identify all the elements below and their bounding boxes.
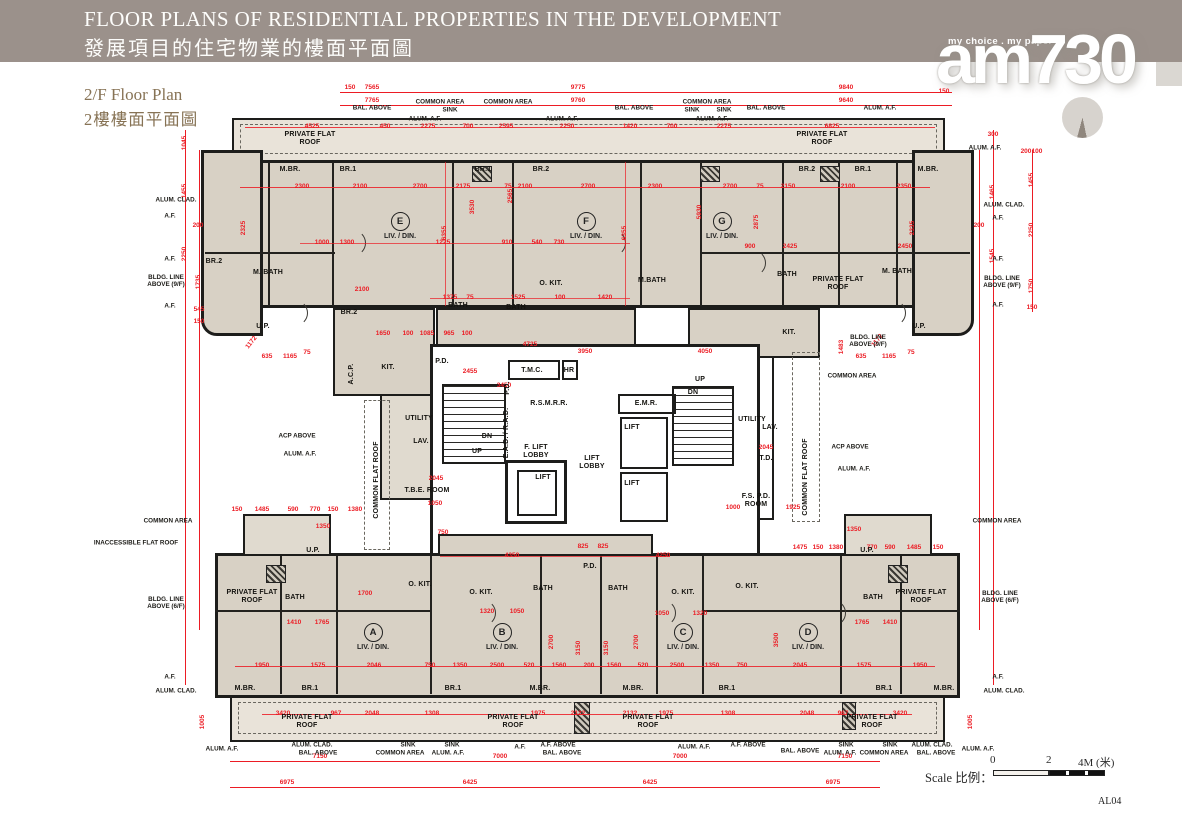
dim-label: 1700: [358, 591, 372, 598]
wall-partition: [600, 556, 602, 694]
callout-label: A.F. ABOVE: [730, 741, 765, 748]
callout-label: COMMON AREA: [860, 749, 909, 756]
room-label: PRIVATE FLAT ROOF: [812, 276, 863, 292]
dim-label: 1300: [340, 240, 354, 247]
dim-label: 7000: [493, 754, 507, 761]
dim-label: 1050: [510, 609, 524, 616]
room-label: M.BR.: [623, 685, 644, 693]
callout-label: BLDG. LINE ABOVE (9/F): [849, 334, 886, 348]
dim-label: 6825: [825, 124, 839, 131]
dim-label: 6425: [643, 780, 657, 787]
unit-b-marker: BLIV. / DIN.: [486, 623, 518, 651]
dim-label: 2350: [897, 184, 911, 191]
dim-label: 1925: [786, 505, 800, 512]
dim-label: 7000: [673, 754, 687, 761]
dim-label: 2455: [463, 369, 477, 376]
dim-label: 2300: [648, 184, 662, 191]
dim-label: 150: [933, 545, 944, 552]
dim-label: 1455: [1029, 173, 1036, 187]
callout-label: INACCESSIBLE FLAT ROOF: [94, 539, 178, 546]
callout-label: SINK: [400, 741, 415, 748]
dim-label: 2175: [456, 184, 470, 191]
dim-label: 1485: [255, 507, 269, 514]
callout-label: ALUM. CLAD.: [984, 201, 1025, 208]
dim-label: 1005: [200, 715, 207, 729]
callout-label: COMMON AREA: [683, 98, 732, 105]
callout-label: A.F. ABOVE: [540, 741, 575, 748]
dim-label: 2250: [182, 247, 189, 261]
unit-e-marker: ELIV. / DIN.: [384, 212, 416, 240]
liv-din-label: LIV. / DIN.: [570, 233, 602, 240]
dim-label: 750: [425, 663, 436, 670]
dim-label: 150: [232, 507, 243, 514]
dim-label: 150: [194, 319, 205, 326]
dim-label: 2122: [571, 711, 585, 718]
room-label: BR.1: [475, 166, 492, 174]
room-label: BATH: [285, 594, 305, 602]
dim-label: 1410: [883, 620, 897, 627]
callout-label: A.F.: [164, 302, 175, 309]
room-label: PRIVATE FLAT ROOF: [487, 714, 538, 730]
room-label: PRIVATE FLAT ROOF: [281, 714, 332, 730]
door-arc: [740, 250, 766, 276]
room-label: O. KIT.: [539, 280, 562, 288]
dim-label: 150: [345, 85, 356, 92]
dim-label: 2595: [499, 124, 513, 131]
room-label: PRIVATE FLAT ROOF: [846, 714, 897, 730]
room-label: COMMON FLAT ROOF: [802, 438, 810, 515]
dim-label: 2045: [793, 663, 807, 670]
unit-circle: A: [364, 623, 383, 642]
dim-label: 1225: [436, 240, 450, 247]
floor-plan-drawing: 1507565977598401507765976096404525450227…: [0, 0, 1182, 828]
dim-line: [230, 787, 880, 788]
dim-label: 1350: [453, 663, 467, 670]
callout-label: ALUM. A.F.: [678, 743, 711, 750]
dim-label: 1560: [552, 663, 566, 670]
dim-label: 1350: [847, 527, 861, 534]
callout-label: ACP ABOVE: [278, 432, 315, 439]
dim-label: 450: [380, 124, 391, 131]
dim-label: 1650: [376, 331, 390, 338]
callout-label: BAL. ABOVE: [747, 104, 786, 111]
dim-label: 2700: [549, 635, 556, 649]
dim-label: 1320: [480, 609, 494, 616]
dim-label: 9760: [571, 98, 585, 105]
sheet-code: AL04: [1098, 796, 1121, 807]
wall-partition: [700, 252, 970, 254]
callout-label: ALUM. A.F.: [864, 104, 897, 111]
callout-label: ALUM. CLAD.: [156, 196, 197, 203]
dim-label: 1350: [316, 524, 330, 531]
room-label: LIFT: [535, 474, 551, 482]
dim-label: 9640: [839, 98, 853, 105]
dim-label: 100: [555, 295, 566, 302]
dim-label: 6975: [280, 780, 294, 787]
dim-label: 2275: [421, 124, 435, 131]
wall-partition: [700, 162, 702, 306]
room-label: F.S. P.D. ROOM: [742, 493, 771, 509]
dim-label: 1172: [245, 335, 259, 350]
dim-label: 75: [303, 350, 310, 357]
scale-bar-right: [1049, 770, 1105, 776]
callout-label: A.F.: [992, 673, 1003, 680]
dim-label: 9840: [839, 85, 853, 92]
room-label: BR.1: [340, 166, 357, 174]
room-label: O. KIT.: [408, 581, 431, 589]
dim-label: 520: [524, 663, 535, 670]
room-label: BR.2: [341, 309, 358, 317]
wall-partition: [205, 252, 335, 254]
callout-label: BAL. ABOVE: [299, 749, 338, 756]
room-label: HR: [564, 367, 575, 375]
dim-label: 1750: [1029, 279, 1036, 293]
wall-partition: [268, 162, 270, 306]
hatch-box: [574, 702, 590, 734]
wall-right-tower: [912, 150, 974, 336]
dim-label: 7765: [365, 98, 379, 105]
door-arc: [282, 300, 308, 326]
dim-label: 6975: [826, 780, 840, 787]
callout-label: BAL. ABOVE: [543, 749, 582, 756]
dim-line: [230, 761, 880, 762]
dim-label: 2565: [508, 189, 515, 203]
room-label: M. BATH: [253, 269, 283, 277]
dim-label: 4725: [523, 342, 537, 349]
dim-line: [440, 556, 670, 557]
room-label: M.BATH: [638, 277, 666, 285]
room-label: P.D.: [435, 358, 449, 366]
callout-label: ALUM. A.F.: [409, 115, 442, 122]
dim-label: 1575: [857, 663, 871, 670]
dim-label: 635: [262, 354, 273, 361]
room-label: R.S.M.R.R.: [530, 400, 567, 408]
dim-label: 590: [288, 507, 299, 514]
liv-din-label: LIV. / DIN.: [486, 644, 518, 651]
room-label: UTILITY: [405, 415, 433, 423]
callout-label: A.F.: [164, 255, 175, 262]
callout-label: BLDG. LINE ABOVE (9/F): [147, 274, 184, 288]
wall-partition: [452, 162, 454, 306]
room-label: M.BR.: [918, 166, 939, 174]
dim-label: 1950: [913, 663, 927, 670]
dim-label: 200: [974, 223, 985, 230]
dim-label: 2275: [717, 124, 731, 131]
wall-partition: [215, 610, 430, 612]
dim-label: 75: [756, 184, 763, 191]
callout-label: COMMON AREA: [376, 749, 425, 756]
hatch-box: [888, 565, 908, 583]
hatch-box: [700, 166, 720, 182]
room-label: COMMON FLAT ROOF: [373, 441, 381, 518]
callout-label: ALUM. CLAD.: [156, 687, 197, 694]
callout-label: ALUM. A.F.: [824, 749, 857, 756]
callout-label: ALUM. CLAD.: [292, 741, 333, 748]
callout-label: ALUM. A.F.: [838, 465, 871, 472]
scale-tick-4: 4M (米): [1078, 754, 1114, 770]
room-label: M.BR.: [280, 166, 301, 174]
dim-label: 1380: [829, 545, 843, 552]
dim-label: 1320: [693, 611, 707, 618]
unit-circle: G: [713, 212, 732, 231]
callout-label: BLDG. LINE ABOVE (9/F): [983, 275, 1020, 289]
hatch-box: [266, 565, 286, 583]
dim-label: 6355: [622, 226, 629, 240]
callout-label: BLDG. LINE ABOVE (6/F): [981, 590, 1018, 604]
dim-label: 1465: [990, 185, 997, 199]
room-label: T.D.: [759, 455, 772, 463]
callout-label: SINK: [716, 106, 731, 113]
dim-label: 2700: [413, 184, 427, 191]
room-label: BR.1: [445, 685, 462, 693]
dim-label: 1000: [726, 505, 740, 512]
wall-partition: [336, 556, 338, 694]
room-label: PRIVATE FLAT ROOF: [226, 589, 277, 605]
room-label: U.P.: [912, 323, 926, 331]
dim-label: 200: [584, 663, 595, 670]
callout-label: SINK: [444, 741, 459, 748]
dim-label: 75: [907, 350, 914, 357]
dim-label: 2045: [429, 476, 443, 483]
room-label: BR.2: [533, 166, 550, 174]
room-label: BATH: [506, 304, 526, 312]
dim-label: 750: [737, 663, 748, 670]
dim-label: 2100: [355, 287, 369, 294]
dim-label: 2100: [841, 184, 855, 191]
callout-label: SINK: [442, 106, 457, 113]
room-label: BATH: [448, 302, 468, 310]
dim-label: 700: [667, 124, 678, 131]
dim-label: 100: [1032, 149, 1043, 156]
dim-label: 4050: [698, 349, 712, 356]
room-label: LAV.: [413, 438, 429, 446]
room-label: BR.1: [876, 685, 893, 693]
stair-right: [672, 386, 734, 466]
dim-label: 1483: [839, 340, 846, 354]
room-label: BATH: [777, 271, 797, 279]
room-label: LIFT LOBBY: [579, 455, 605, 471]
dim-label: 2048: [365, 711, 379, 718]
dim-label: 1575: [311, 663, 325, 670]
liv-din-label: LIV. / DIN.: [706, 233, 738, 240]
dim-label: 1165: [283, 354, 297, 361]
dim-label: 1485: [907, 545, 921, 552]
dim-label: 75: [466, 295, 473, 302]
dim-label: 3150: [604, 641, 611, 655]
callout-label: A.F.: [992, 214, 1003, 221]
room-label: U.P.: [306, 547, 320, 555]
liv-din-label: LIV. / DIN.: [792, 644, 824, 651]
room-label: UP: [472, 448, 482, 456]
dim-label: 2425: [783, 244, 797, 251]
callout-label: ALUM. A.F.: [206, 745, 239, 752]
dim-label: 1050: [428, 501, 442, 508]
room-label: M. BATH: [882, 268, 912, 276]
unit-c-marker: CLIV. / DIN.: [667, 623, 699, 651]
dim-label: 1045: [182, 136, 189, 150]
dim-label: 770: [310, 507, 321, 514]
callout-label: COMMON AREA: [484, 98, 533, 105]
liv-din-label: LIV. / DIN.: [384, 233, 416, 240]
room-label: O. KIT.: [469, 589, 492, 597]
dim-label: 3150: [576, 641, 583, 655]
room-label: PRIVATE FLAT ROOF: [895, 589, 946, 605]
room-label: BR.1: [302, 685, 319, 693]
room-label: O. KIT.: [671, 589, 694, 597]
room-label: LIFT: [624, 480, 640, 488]
room-label: UP: [695, 376, 705, 384]
callout-label: ALUM. CLAD.: [912, 741, 953, 748]
room-label: DN: [688, 389, 699, 397]
dim-label: 2700: [634, 635, 641, 649]
dim-label: 4525: [305, 124, 319, 131]
dim-label: 100: [462, 331, 473, 338]
wall-partition: [512, 162, 514, 306]
callout-label: BAL. ABOVE: [917, 749, 956, 756]
scale-label: Scale 比例：: [925, 767, 993, 786]
dim-label: 2250: [560, 124, 574, 131]
callout-label: A.F.: [164, 212, 175, 219]
callout-label: A.F.: [992, 255, 1003, 262]
dim-label: 150: [328, 507, 339, 514]
dim-label: 540: [532, 240, 543, 247]
dim-label: 200: [1021, 149, 1032, 156]
room-label: P.D.: [504, 381, 512, 395]
dim-label: 1050: [655, 611, 669, 618]
room-label: BATH: [533, 585, 553, 593]
hatch-box: [820, 166, 840, 182]
dim-label: 150: [939, 89, 950, 96]
callout-label: COMMON AREA: [828, 372, 877, 379]
unit-a-marker: ALIV. / DIN.: [357, 623, 389, 651]
dim-label: 1350: [705, 663, 719, 670]
unit-g-marker: GLIV. / DIN.: [706, 212, 738, 240]
dim-label: 910: [502, 240, 513, 247]
dim-label: 965: [444, 331, 455, 338]
dim-label: 2335: [910, 221, 917, 235]
dim-label: 1380: [348, 507, 362, 514]
dim-label: 730: [554, 240, 565, 247]
room-label: PRIVATE FLAT ROOF: [796, 131, 847, 147]
dim-label: 7565: [365, 85, 379, 92]
dim-line: [185, 130, 186, 685]
dim-label: 1410: [287, 620, 301, 627]
scale-tick-0: 0: [990, 754, 996, 766]
dim-label: 2500: [670, 663, 684, 670]
room-label: F. LIFT LOBBY: [523, 444, 549, 460]
dim-label: 1765: [315, 620, 329, 627]
callout-label: COMMON AREA: [144, 517, 193, 524]
room-label: KIT.: [782, 329, 795, 337]
callout-label: ALUM. CLAD.: [984, 687, 1025, 694]
callout-label: ALUM. A.F.: [284, 450, 317, 457]
unit-circle: F: [577, 212, 596, 231]
room-label: P.D.: [583, 563, 597, 571]
room-label: LAV.: [762, 424, 778, 432]
dim-label: 545: [194, 307, 205, 314]
unit-circle: E: [391, 212, 410, 231]
dim-label: 3530: [470, 200, 477, 214]
callout-label: ALUM. A.F.: [962, 745, 995, 752]
liv-din-label: LIV. / DIN.: [667, 644, 699, 651]
dim-line: [340, 92, 952, 93]
dim-label: 900: [745, 244, 756, 251]
callout-label: A.F.: [514, 743, 525, 750]
room-label: BATH: [863, 594, 883, 602]
dim-label: 3950: [578, 349, 592, 356]
dim-label: 2325: [241, 221, 248, 235]
dim-label: 9775: [571, 85, 585, 92]
callout-label: SINK: [684, 106, 699, 113]
dim-label: 2700: [723, 184, 737, 191]
dim-label: 1735: [196, 275, 203, 289]
dim-label: 300: [988, 132, 999, 139]
callout-label: ALUM. A.F.: [432, 749, 465, 756]
room-label: DN: [482, 433, 493, 441]
room-label: E.A.D. / R.A.D.: [503, 408, 511, 458]
dim-line: [262, 714, 912, 715]
dim-label: 100: [403, 331, 414, 338]
wall-bottom-center-up: [438, 534, 653, 556]
dim-label: 1000: [315, 240, 329, 247]
room-label: U.P.: [256, 323, 270, 331]
dim-label: 2875: [754, 215, 761, 229]
room-label: T.B.E. ROOM: [405, 487, 450, 495]
dim-label: 150: [1027, 305, 1038, 312]
dim-label: 1375: [443, 295, 457, 302]
callout-label: SINK: [882, 741, 897, 748]
callout-label: A.F.: [164, 673, 175, 680]
dim-label: 750: [438, 530, 449, 537]
wall-partition: [332, 162, 334, 306]
dim-label: 2300: [295, 184, 309, 191]
dim-label: 4350: [505, 553, 519, 560]
dim-label: 825: [598, 544, 609, 551]
door-arc: [880, 300, 906, 326]
dim-label: 1420: [598, 295, 612, 302]
dim-label: 2046: [367, 663, 381, 670]
dim-label: 635: [856, 354, 867, 361]
wall-partition: [702, 556, 704, 694]
dim-label: 520: [638, 663, 649, 670]
callout-label: SINK: [838, 741, 853, 748]
dim-label: 590: [885, 545, 896, 552]
room-label: U.P.: [860, 547, 874, 555]
room-label: E.M.R.: [635, 400, 658, 408]
dim-label: 1525: [511, 295, 525, 302]
dim-label: 1308: [425, 711, 439, 718]
liv-din-label: LIV. / DIN.: [357, 644, 389, 651]
callout-label: BAL. ABOVE: [353, 104, 392, 111]
room-label: LIFT: [624, 424, 640, 432]
unit-f-marker: FLIV. / DIN.: [570, 212, 602, 240]
room-label: M.BR.: [934, 685, 955, 693]
dim-label: 1165: [882, 354, 896, 361]
callout-label: BAL. ABOVE: [781, 747, 820, 754]
room-label: M.BR.: [235, 685, 256, 693]
dim-label: 2500: [490, 663, 504, 670]
dim-label: 2045: [759, 445, 773, 452]
dim-label: 1560: [607, 663, 621, 670]
dim-label: 2250: [1029, 223, 1036, 237]
callout-label: ACP ABOVE: [831, 443, 868, 450]
unit-circle: D: [799, 623, 818, 642]
dim-label: 2150: [781, 184, 795, 191]
scale-bar-left: [993, 770, 1049, 776]
room-label: A.C.P.: [348, 364, 356, 385]
unit-circle: C: [674, 623, 693, 642]
callout-label: ALUM. A.F.: [546, 115, 579, 122]
